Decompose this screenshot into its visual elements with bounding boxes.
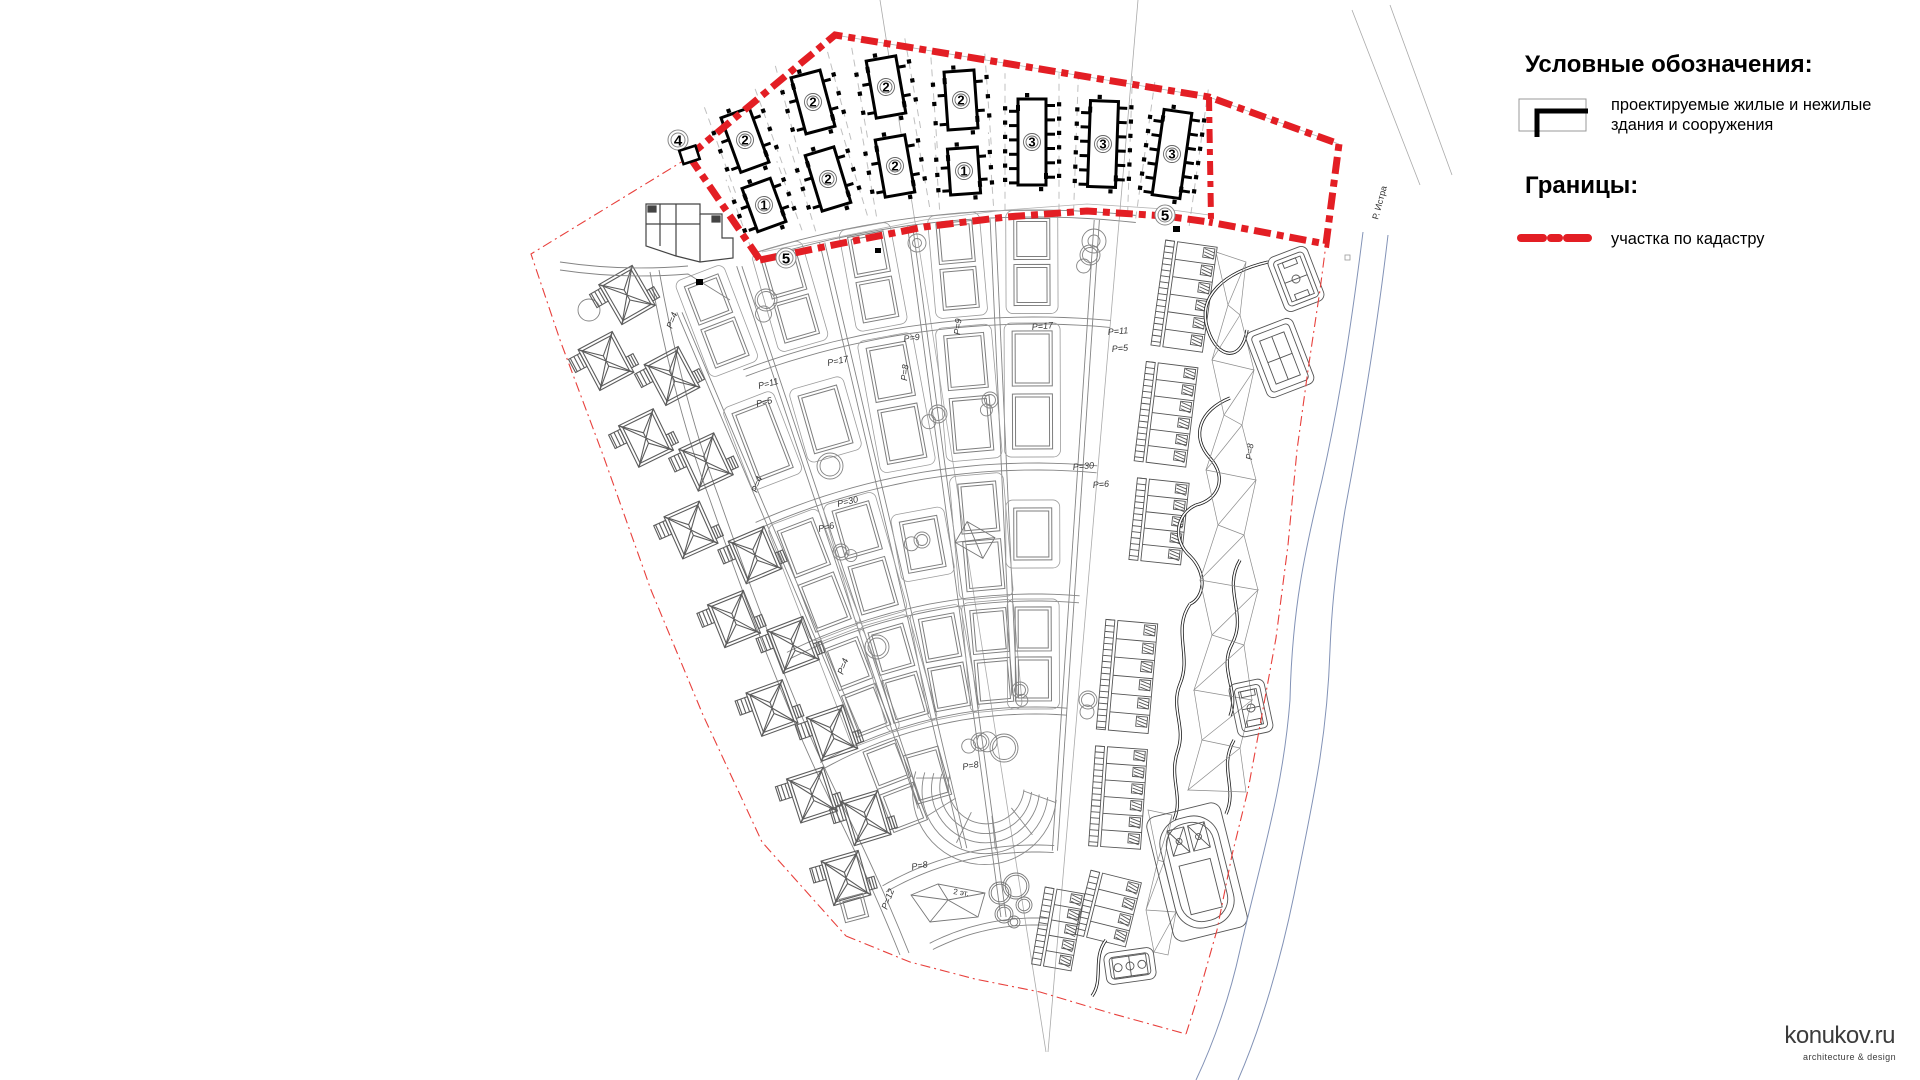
svg-text:2: 2 — [891, 159, 898, 174]
svg-text:здания и сооружения: здания и сооружения — [1611, 116, 1773, 134]
svg-text:2: 2 — [809, 95, 816, 110]
svg-text:3: 3 — [1099, 137, 1106, 152]
svg-text:P=9: P=9 — [952, 318, 963, 335]
svg-text:5: 5 — [782, 251, 790, 268]
svg-text:P=17: P=17 — [1031, 320, 1054, 332]
svg-text:2: 2 — [882, 80, 889, 95]
svg-text:P=11: P=11 — [1107, 325, 1128, 337]
svg-text:architecture & design: architecture & design — [1803, 1052, 1896, 1062]
svg-text:P=6: P=6 — [1092, 479, 1109, 490]
svg-text:проектируемые жилые и нежилые: проектируемые жилые и нежилые — [1611, 96, 1871, 114]
svg-text:P=8: P=8 — [1244, 443, 1255, 460]
svg-text:3: 3 — [1028, 135, 1035, 150]
svg-text:2: 2 — [824, 172, 831, 187]
svg-text:Границы:: Границы: — [1525, 172, 1638, 199]
svg-text:P=5: P=5 — [1111, 343, 1129, 354]
svg-text:Условные обозначения:: Условные обозначения: — [1525, 51, 1813, 78]
svg-text:P=30: P=30 — [1072, 460, 1094, 472]
svg-text:4: 4 — [674, 133, 683, 150]
svg-text:3: 3 — [1168, 147, 1175, 162]
svg-text:1: 1 — [760, 198, 767, 213]
svg-text:участка по кадастру: участка по кадастру — [1611, 230, 1765, 248]
svg-text:1: 1 — [960, 164, 967, 179]
svg-text:P=8: P=8 — [899, 364, 910, 381]
svg-text:2: 2 — [957, 93, 964, 108]
svg-text:konukov.ru: konukov.ru — [1784, 1022, 1895, 1049]
svg-text:5: 5 — [1161, 208, 1169, 225]
svg-text:2: 2 — [741, 133, 748, 148]
